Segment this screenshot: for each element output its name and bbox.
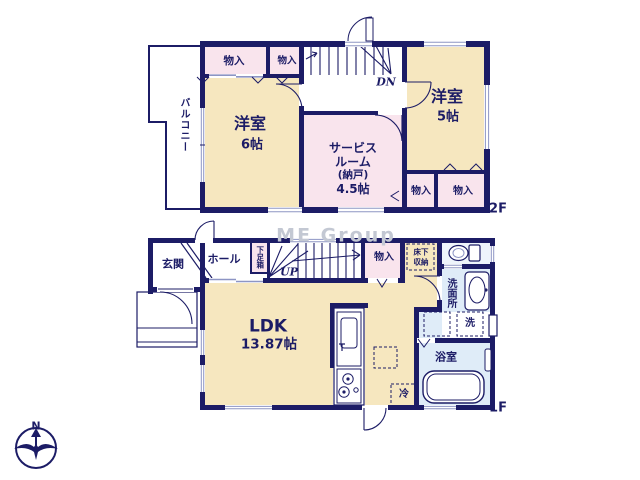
shoe-cabinet-label: 下足箱 (256, 246, 264, 269)
service-room-label-1: サービス (329, 142, 377, 154)
stairs-down-label: DN (376, 77, 396, 88)
balcony-label: バルコニー (178, 98, 188, 153)
floor2-tag: 2F (489, 203, 507, 216)
closet-1f-label: 物入 (374, 253, 394, 263)
ldk-size-label: 13.87帖 (241, 338, 297, 352)
fridge-label: 冷 (399, 390, 409, 400)
compass-icon (14, 428, 58, 468)
hall-label: ホール (208, 254, 241, 265)
underfloor-storage-label-1: 床下 (414, 248, 429, 256)
closet-2f-top-right-label: 物入 (277, 56, 296, 66)
closet-2f-top-left-label: 物入 (224, 56, 245, 67)
stairs-up-label: UP (280, 267, 298, 278)
balcony-outline (149, 46, 205, 209)
floor1-plan (137, 221, 497, 430)
floor1-tag: 1F (489, 402, 507, 415)
service-room-label-4: 4.5帖 (336, 183, 369, 195)
room5-name-label: 洋室 (431, 89, 463, 105)
entrance-porch (137, 292, 197, 347)
room5-size-label: 5帖 (437, 111, 459, 124)
closet-2f-bottom-left-label: 物入 (411, 187, 431, 197)
washroom-label: 洗面所 (445, 278, 455, 308)
underfloor-storage-label-2: 収納 (414, 258, 429, 266)
kitchen-counter-icon (334, 308, 364, 405)
room6-size-label: 6帖 (241, 139, 263, 152)
bathroom-label: 浴室 (435, 352, 457, 363)
washer-label: 洗 (465, 319, 475, 329)
room6-name-label: 洋室 (234, 116, 266, 132)
toilet-icon (449, 245, 480, 261)
service-room-label-3: (納戸) (338, 170, 369, 181)
entrance-label: 玄関 (162, 259, 184, 270)
compass-north-label: N (31, 421, 40, 432)
watermark-text: ME Group (276, 227, 396, 246)
closet-2f-bottom-right-label: 物入 (453, 187, 473, 197)
ldk-name-label: LDK (249, 319, 287, 336)
floorplan-canvas: バルコニー 物入 物入 DN 洋室 6帖 サービス ルーム (納戸) 4.5帖 … (0, 0, 640, 480)
service-room-label-2: ルーム (335, 156, 371, 168)
sink-icon (465, 272, 489, 310)
